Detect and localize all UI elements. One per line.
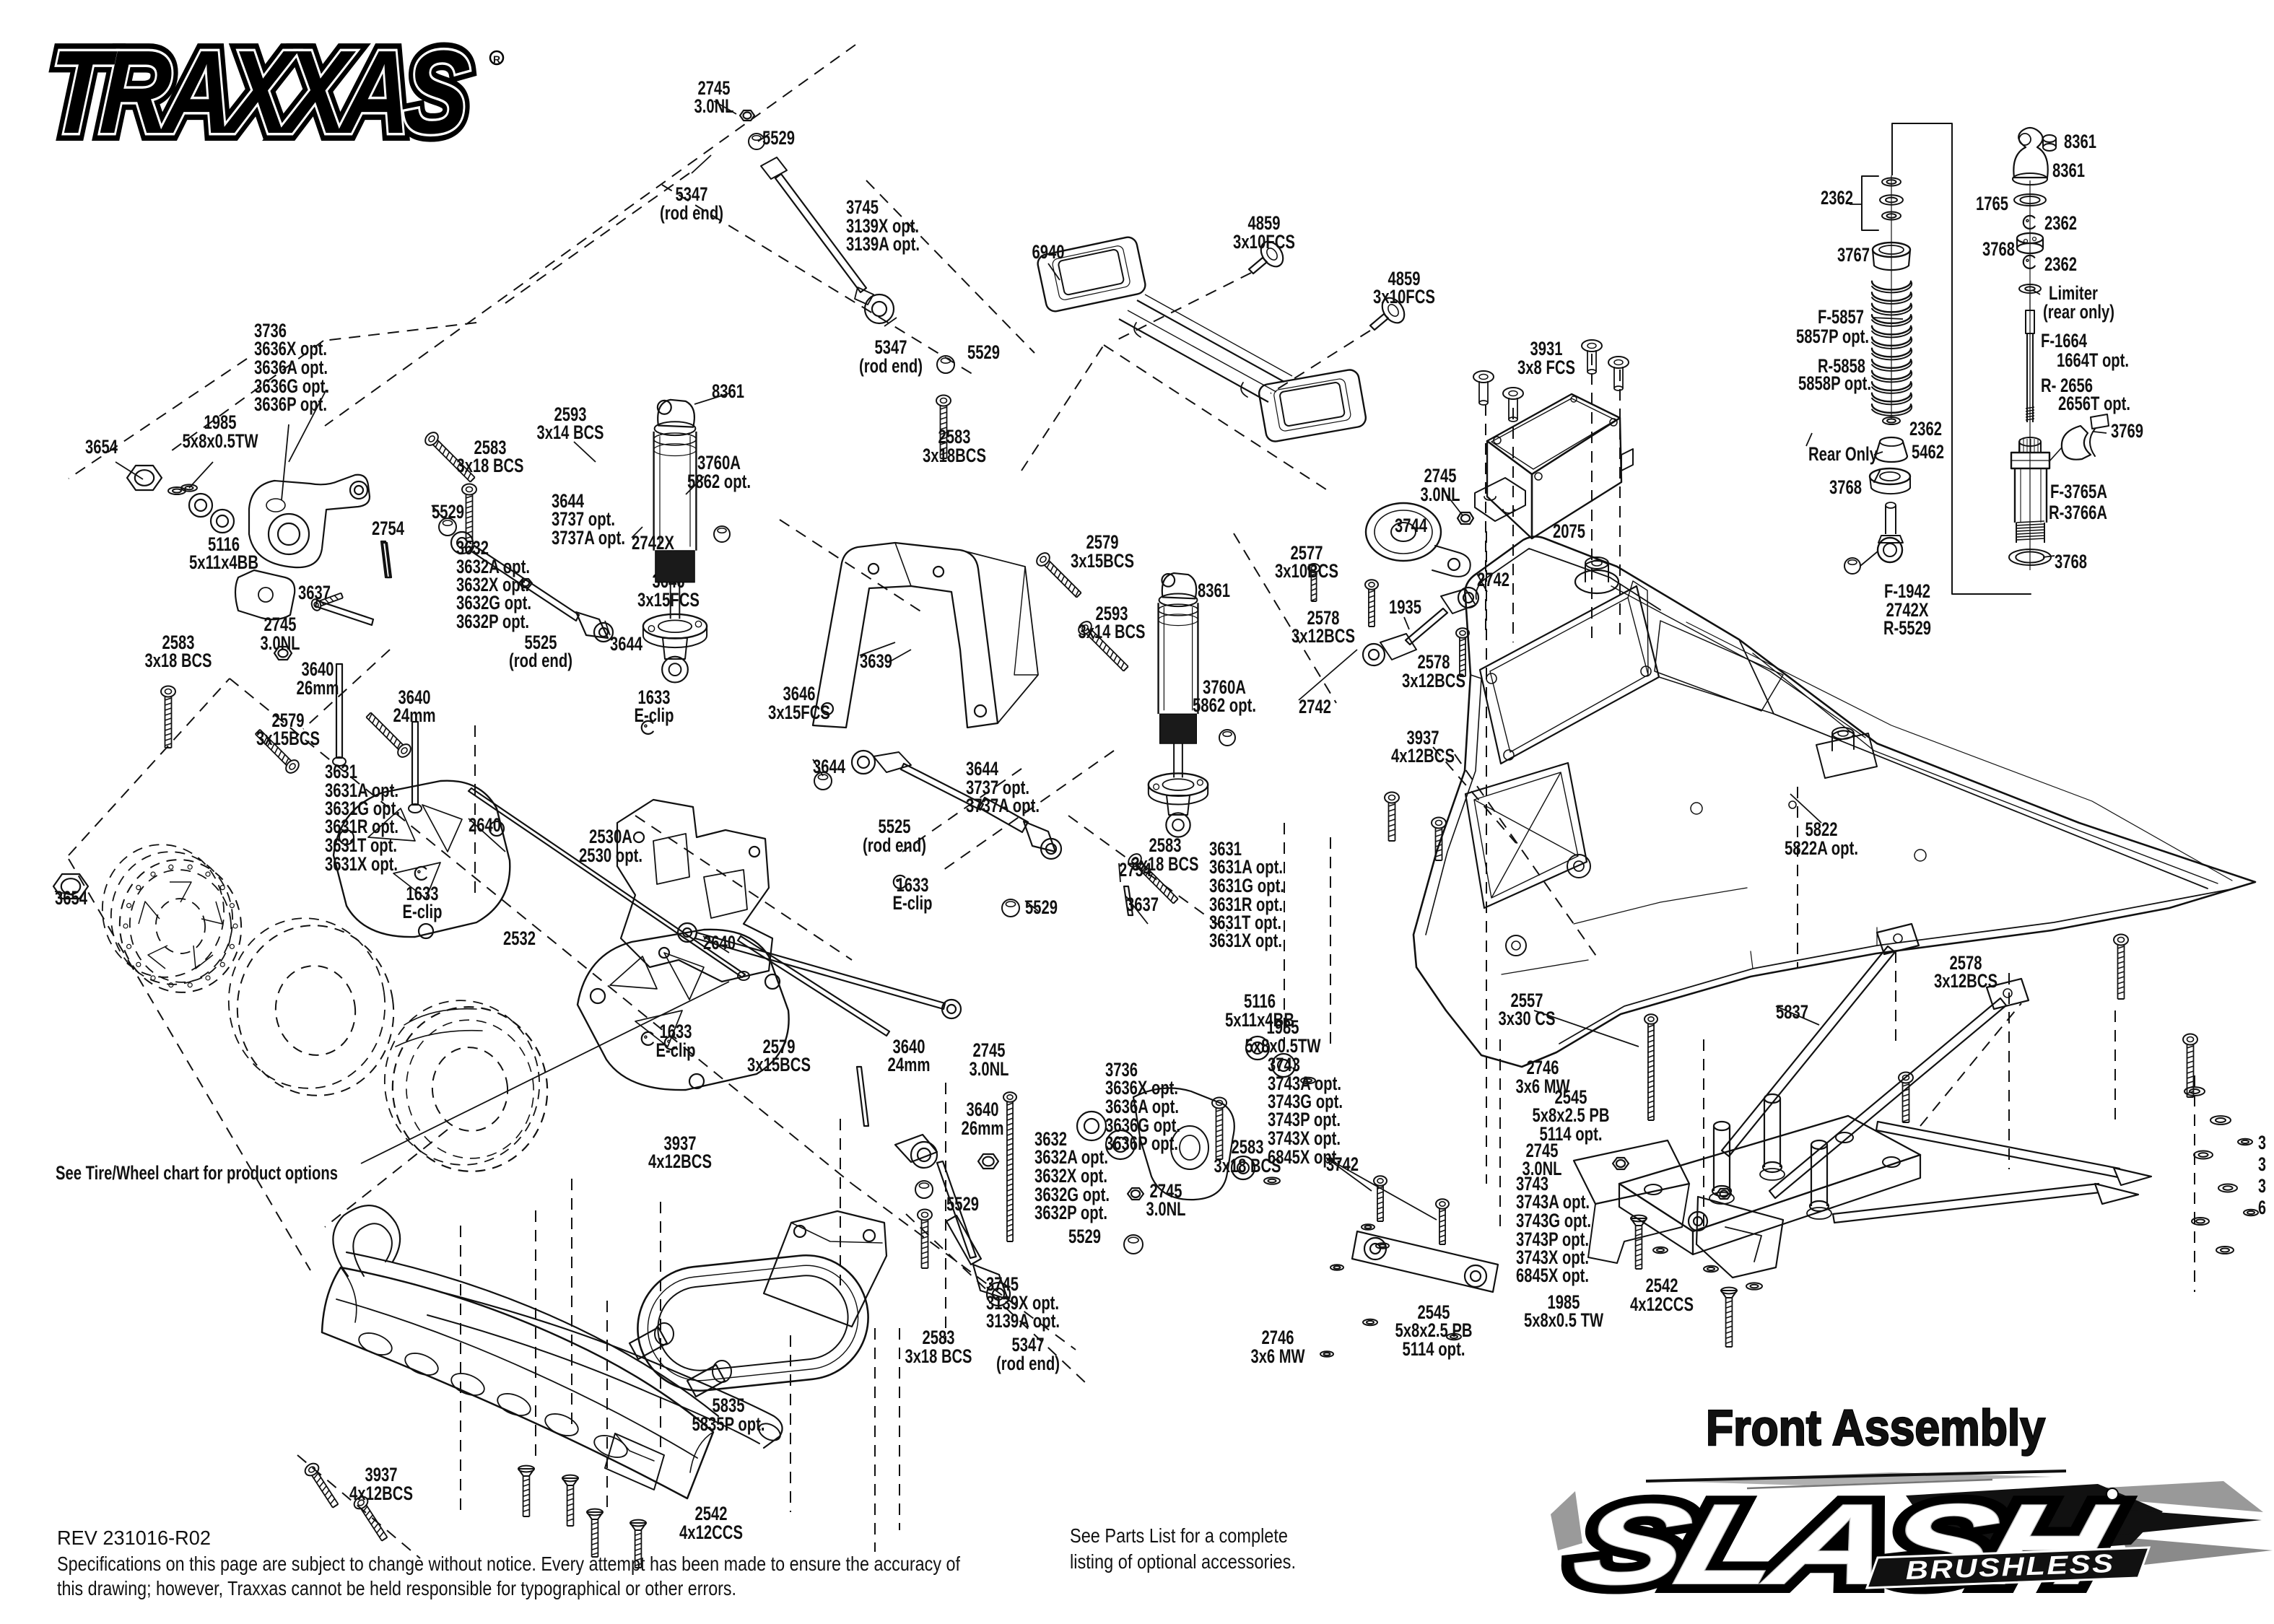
- svg-text:6845X opt.: 6845X opt.: [1516, 1265, 1589, 1286]
- svg-text:3x15BCS: 3x15BCS: [1071, 550, 1134, 572]
- svg-text:1935: 1935: [1389, 596, 1421, 618]
- svg-text:3: 3: [2258, 1175, 2266, 1197]
- svg-text:3631X opt.: 3631X opt.: [1209, 930, 1282, 951]
- svg-text:5529: 5529: [432, 501, 464, 523]
- svg-text:4x12CCS: 4x12CCS: [1630, 1293, 1694, 1315]
- svg-text:3: 3: [2258, 1132, 2266, 1153]
- svg-text:1664T opt.: 1664T opt.: [2057, 349, 2129, 371]
- svg-text:3768: 3768: [2055, 551, 2087, 572]
- svg-text:3: 3: [2258, 1153, 2266, 1175]
- svg-text:5529: 5529: [1068, 1226, 1101, 1247]
- svg-text:3768: 3768: [1829, 476, 1862, 498]
- svg-text:3x14 BCS: 3x14 BCS: [537, 422, 604, 443]
- svg-text:3.0NL: 3.0NL: [970, 1058, 1009, 1080]
- svg-text:See Parts List for a complete: See Parts List for a complete: [1070, 1524, 1288, 1547]
- svg-text:26mm: 26mm: [962, 1117, 1004, 1139]
- svg-text:Rear Only: Rear Only: [1808, 443, 1878, 465]
- svg-text:4x12BCS: 4x12BCS: [1391, 745, 1455, 767]
- svg-text:24mm: 24mm: [888, 1054, 931, 1075]
- svg-text:3x12BCS: 3x12BCS: [1934, 970, 1998, 992]
- svg-text:4x12CCS: 4x12CCS: [679, 1522, 743, 1543]
- svg-text:5529: 5529: [967, 341, 1000, 363]
- svg-text:3x15FCS: 3x15FCS: [637, 589, 700, 611]
- svg-text:3737A opt.: 3737A opt.: [966, 795, 1040, 816]
- svg-text:3139A opt.: 3139A opt.: [846, 233, 920, 255]
- svg-text:3769: 3769: [2111, 420, 2143, 442]
- svg-text:8361: 8361: [2052, 160, 2085, 181]
- svg-text:5x8x0.5 TW: 5x8x0.5 TW: [1524, 1309, 1603, 1331]
- svg-text:5x11x4BB: 5x11x4BB: [189, 551, 258, 573]
- svg-text:4x12BCS: 4x12BCS: [648, 1151, 712, 1172]
- svg-text:3x18 BCS: 3x18 BCS: [905, 1345, 972, 1367]
- svg-text:5858P opt.: 5858P opt.: [1798, 372, 1871, 394]
- svg-text:3x18 BCS: 3x18 BCS: [145, 650, 212, 671]
- svg-text:3x30 CS: 3x30 CS: [1499, 1008, 1556, 1029]
- svg-text:R-3766A: R-3766A: [2049, 502, 2107, 523]
- svg-text:(rod end): (rod end): [509, 650, 572, 671]
- svg-text:2742: 2742: [1299, 696, 1331, 717]
- svg-text:2362: 2362: [1909, 418, 1942, 440]
- svg-text:3x12BCS: 3x12BCS: [1291, 625, 1355, 647]
- svg-text:5114 opt.: 5114 opt.: [1403, 1338, 1465, 1360]
- svg-text:2075: 2075: [1553, 520, 1585, 542]
- svg-text:6: 6: [2258, 1197, 2266, 1218]
- svg-text:2362: 2362: [1821, 187, 1853, 209]
- svg-text:3x10FCS: 3x10FCS: [1233, 231, 1295, 253]
- svg-text:2742: 2742: [1477, 569, 1510, 590]
- svg-text:3.0NL: 3.0NL: [694, 95, 734, 117]
- svg-text:3742: 3742: [1326, 1153, 1359, 1175]
- svg-text:R-5529: R-5529: [1883, 617, 1931, 639]
- svg-text:5857P opt.: 5857P opt.: [1796, 326, 1869, 347]
- svg-text:5529: 5529: [762, 127, 795, 149]
- svg-text:3x6 MW: 3x6 MW: [1251, 1345, 1305, 1367]
- svg-text:5822A opt.: 5822A opt.: [1785, 837, 1858, 859]
- svg-text:2532: 2532: [503, 927, 536, 949]
- svg-text:3744: 3744: [1395, 515, 1427, 536]
- svg-text:Specifications on this page ar: Specifications on this page are subject …: [57, 1553, 960, 1575]
- svg-text:5529: 5529: [1025, 896, 1058, 918]
- svg-text:3.0NL: 3.0NL: [1421, 484, 1460, 505]
- svg-text:(rod end): (rod end): [859, 355, 923, 377]
- svg-text:3632P opt.: 3632P opt.: [456, 611, 529, 632]
- svg-text:(rear only): (rear only): [2043, 301, 2114, 323]
- svg-text:3x18 BCS: 3x18 BCS: [457, 455, 524, 476]
- svg-text:3644: 3644: [610, 633, 642, 655]
- svg-text:listing of optional accessorie: listing of optional accessories.: [1070, 1550, 1296, 1573]
- svg-text:3x18BCS: 3x18BCS: [923, 445, 986, 466]
- svg-text:(rod end): (rod end): [863, 834, 926, 856]
- svg-text:F-1664: F-1664: [2041, 330, 2087, 352]
- svg-text:(rod end): (rod end): [996, 1353, 1060, 1374]
- svg-text:3768: 3768: [1982, 238, 2015, 260]
- svg-text:2656T opt.: 2656T opt.: [2058, 393, 2130, 414]
- svg-text:3632P opt.: 3632P opt.: [1034, 1202, 1107, 1223]
- svg-text:3x12BCS: 3x12BCS: [1402, 670, 1465, 691]
- svg-text:3654: 3654: [85, 436, 118, 458]
- svg-text:See Tire/Wheel chart for produ: See Tire/Wheel chart for product options: [56, 1162, 338, 1184]
- svg-text:3636P opt.: 3636P opt.: [254, 393, 327, 415]
- svg-text:5862 opt.: 5862 opt.: [1193, 694, 1256, 716]
- svg-text:5462: 5462: [1912, 441, 1944, 463]
- svg-text:26mm: 26mm: [297, 677, 339, 699]
- svg-text:3.0NL: 3.0NL: [1146, 1198, 1186, 1220]
- svg-text:8361: 8361: [2064, 131, 2096, 152]
- svg-text:this drawing; however, Traxxas: this drawing; however, Traxxas cannot be…: [57, 1577, 736, 1599]
- svg-text:REV 231016-R02: REV 231016-R02: [57, 1527, 211, 1549]
- svg-text:2754: 2754: [372, 518, 404, 539]
- svg-text:E-clip: E-clip: [893, 892, 933, 914]
- svg-text:R: R: [493, 53, 500, 65]
- svg-text:(rod end): (rod end): [660, 202, 723, 224]
- svg-text:TRAXXAS: TRAXXAS: [45, 25, 472, 158]
- svg-text:3737A opt.: 3737A opt.: [552, 527, 625, 549]
- svg-text:3767: 3767: [1837, 244, 1870, 266]
- svg-text:3139A opt.: 3139A opt.: [986, 1310, 1060, 1332]
- svg-text:8361: 8361: [712, 380, 744, 402]
- svg-text:3x15FCS: 3x15FCS: [768, 702, 830, 723]
- svg-text:1765: 1765: [1976, 193, 2008, 214]
- svg-text:8361: 8361: [1198, 580, 1230, 601]
- svg-text:5x8x0.5TW: 5x8x0.5TW: [183, 430, 258, 452]
- svg-text:2362: 2362: [2044, 253, 2077, 275]
- svg-text:E-clip: E-clip: [403, 901, 443, 922]
- svg-text:3x15BCS: 3x15BCS: [747, 1054, 811, 1075]
- svg-text:F-3765A: F-3765A: [2050, 481, 2107, 502]
- svg-text:2362: 2362: [2044, 212, 2077, 234]
- svg-text:E-clip: E-clip: [635, 704, 674, 726]
- svg-text:3x8 FCS: 3x8 FCS: [1517, 357, 1575, 378]
- svg-text:24mm: 24mm: [393, 704, 436, 726]
- svg-text:F-5857: F-5857: [1818, 306, 1864, 328]
- svg-text:Front Assembly: Front Assembly: [1706, 1400, 2045, 1456]
- svg-text:3x6 MW: 3x6 MW: [1516, 1075, 1570, 1097]
- svg-text:3x10BCS: 3x10BCS: [1275, 560, 1338, 582]
- svg-text:2530 opt.: 2530 opt.: [579, 844, 642, 866]
- svg-text:SLASH: SLASH: [1562, 1480, 2126, 1608]
- svg-text:5837: 5837: [1776, 1001, 1808, 1023]
